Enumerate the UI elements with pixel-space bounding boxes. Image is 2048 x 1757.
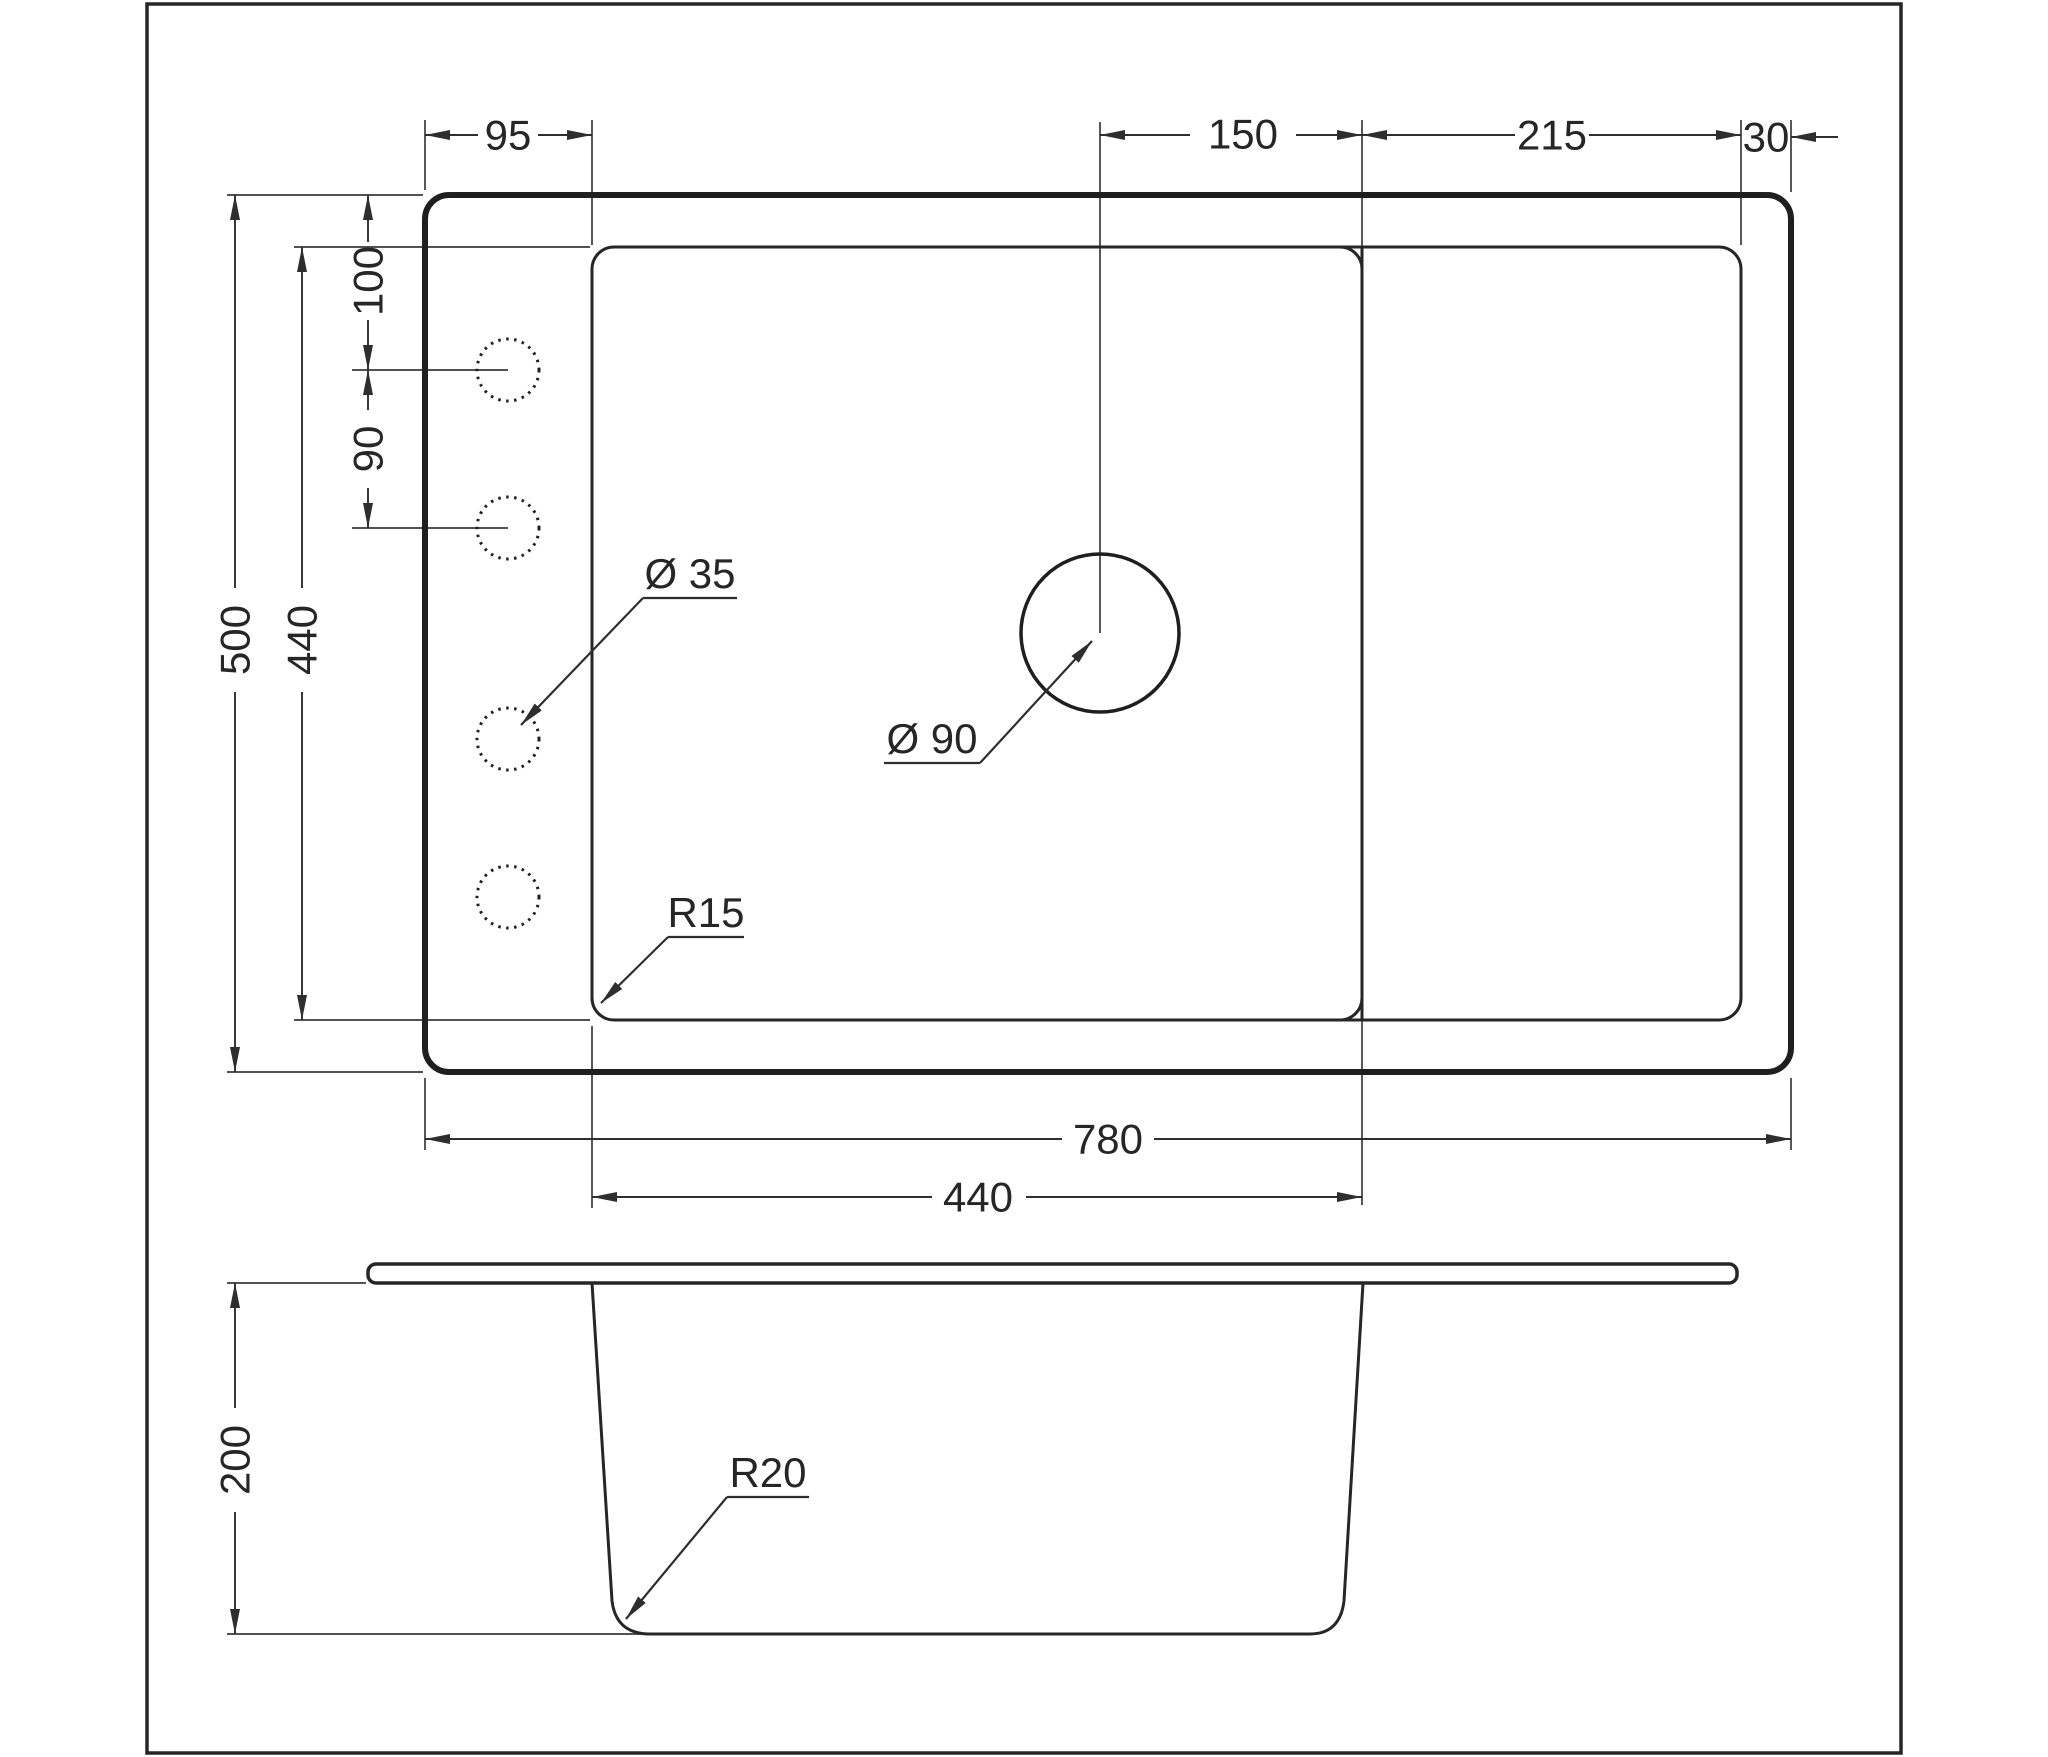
bowl-corner-fillet-bottom [1340, 998, 1362, 1020]
leader-arrow [980, 641, 1092, 763]
dim-label-780: 780 [1073, 1116, 1143, 1163]
hole-diameter-label: Ø 35 [644, 550, 735, 597]
leader-arrow [626, 1497, 727, 1619]
side-view: 200 R20 [212, 1264, 1738, 1634]
bowl-corner-fillet-top [1340, 247, 1362, 269]
tap-hole-4 [477, 866, 539, 928]
corner-radius-label: R15 [667, 889, 744, 936]
dim-200: 200 [212, 1283, 259, 1634]
leader-arrow [601, 937, 668, 1003]
dim-440-left: 440 [279, 247, 326, 1020]
dim-label-200: 200 [212, 1425, 259, 1495]
dim-95: 95 [425, 112, 592, 159]
dim-100: 100 [345, 195, 392, 370]
bowl-section-profile [592, 1283, 1363, 1634]
extension-lines [227, 120, 1791, 1208]
dim-label-100: 100 [345, 246, 392, 316]
bottom-radius-label: R20 [729, 1449, 806, 1496]
dim-label-440-bottom: 440 [943, 1174, 1013, 1221]
extension-lines-side [227, 1283, 645, 1634]
drawing-sheet: 95 150 215 30 500 440 [0, 0, 2048, 1757]
leader-arrow [521, 598, 643, 725]
dim-150: 150 [1100, 111, 1362, 158]
bowl-and-drainboard-outline [592, 247, 1741, 1020]
dim-label-150: 150 [1208, 111, 1278, 158]
dim-label-30: 30 [1743, 114, 1790, 161]
dim-440-bottom: 440 [592, 1174, 1362, 1221]
tap-holes [477, 339, 539, 928]
dim-780: 780 [425, 1116, 1791, 1163]
dim-215: 215 [1362, 112, 1741, 159]
dim-label-440-left: 440 [279, 605, 326, 675]
dim-90: 90 [345, 370, 392, 528]
dim-label-500: 500 [212, 605, 259, 675]
dim-500: 500 [212, 195, 259, 1072]
sheet-border-frame [147, 4, 1901, 1753]
drain-diameter-label: Ø 90 [886, 715, 977, 762]
dim-label-215: 215 [1517, 112, 1587, 159]
callout-hole-diameter: Ø 35 [521, 550, 737, 725]
callout-bottom-radius: R20 [626, 1449, 809, 1619]
dim-label-90: 90 [345, 426, 392, 473]
sink-rim-section [368, 1264, 1737, 1283]
dim-label-95: 95 [485, 112, 532, 159]
top-view: 95 150 215 30 500 440 [212, 111, 1839, 1221]
callout-corner-radius: R15 [601, 889, 745, 1003]
sink-technical-drawing: 95 150 215 30 500 440 [0, 0, 2048, 1757]
sink-outer-outline [425, 195, 1791, 1072]
